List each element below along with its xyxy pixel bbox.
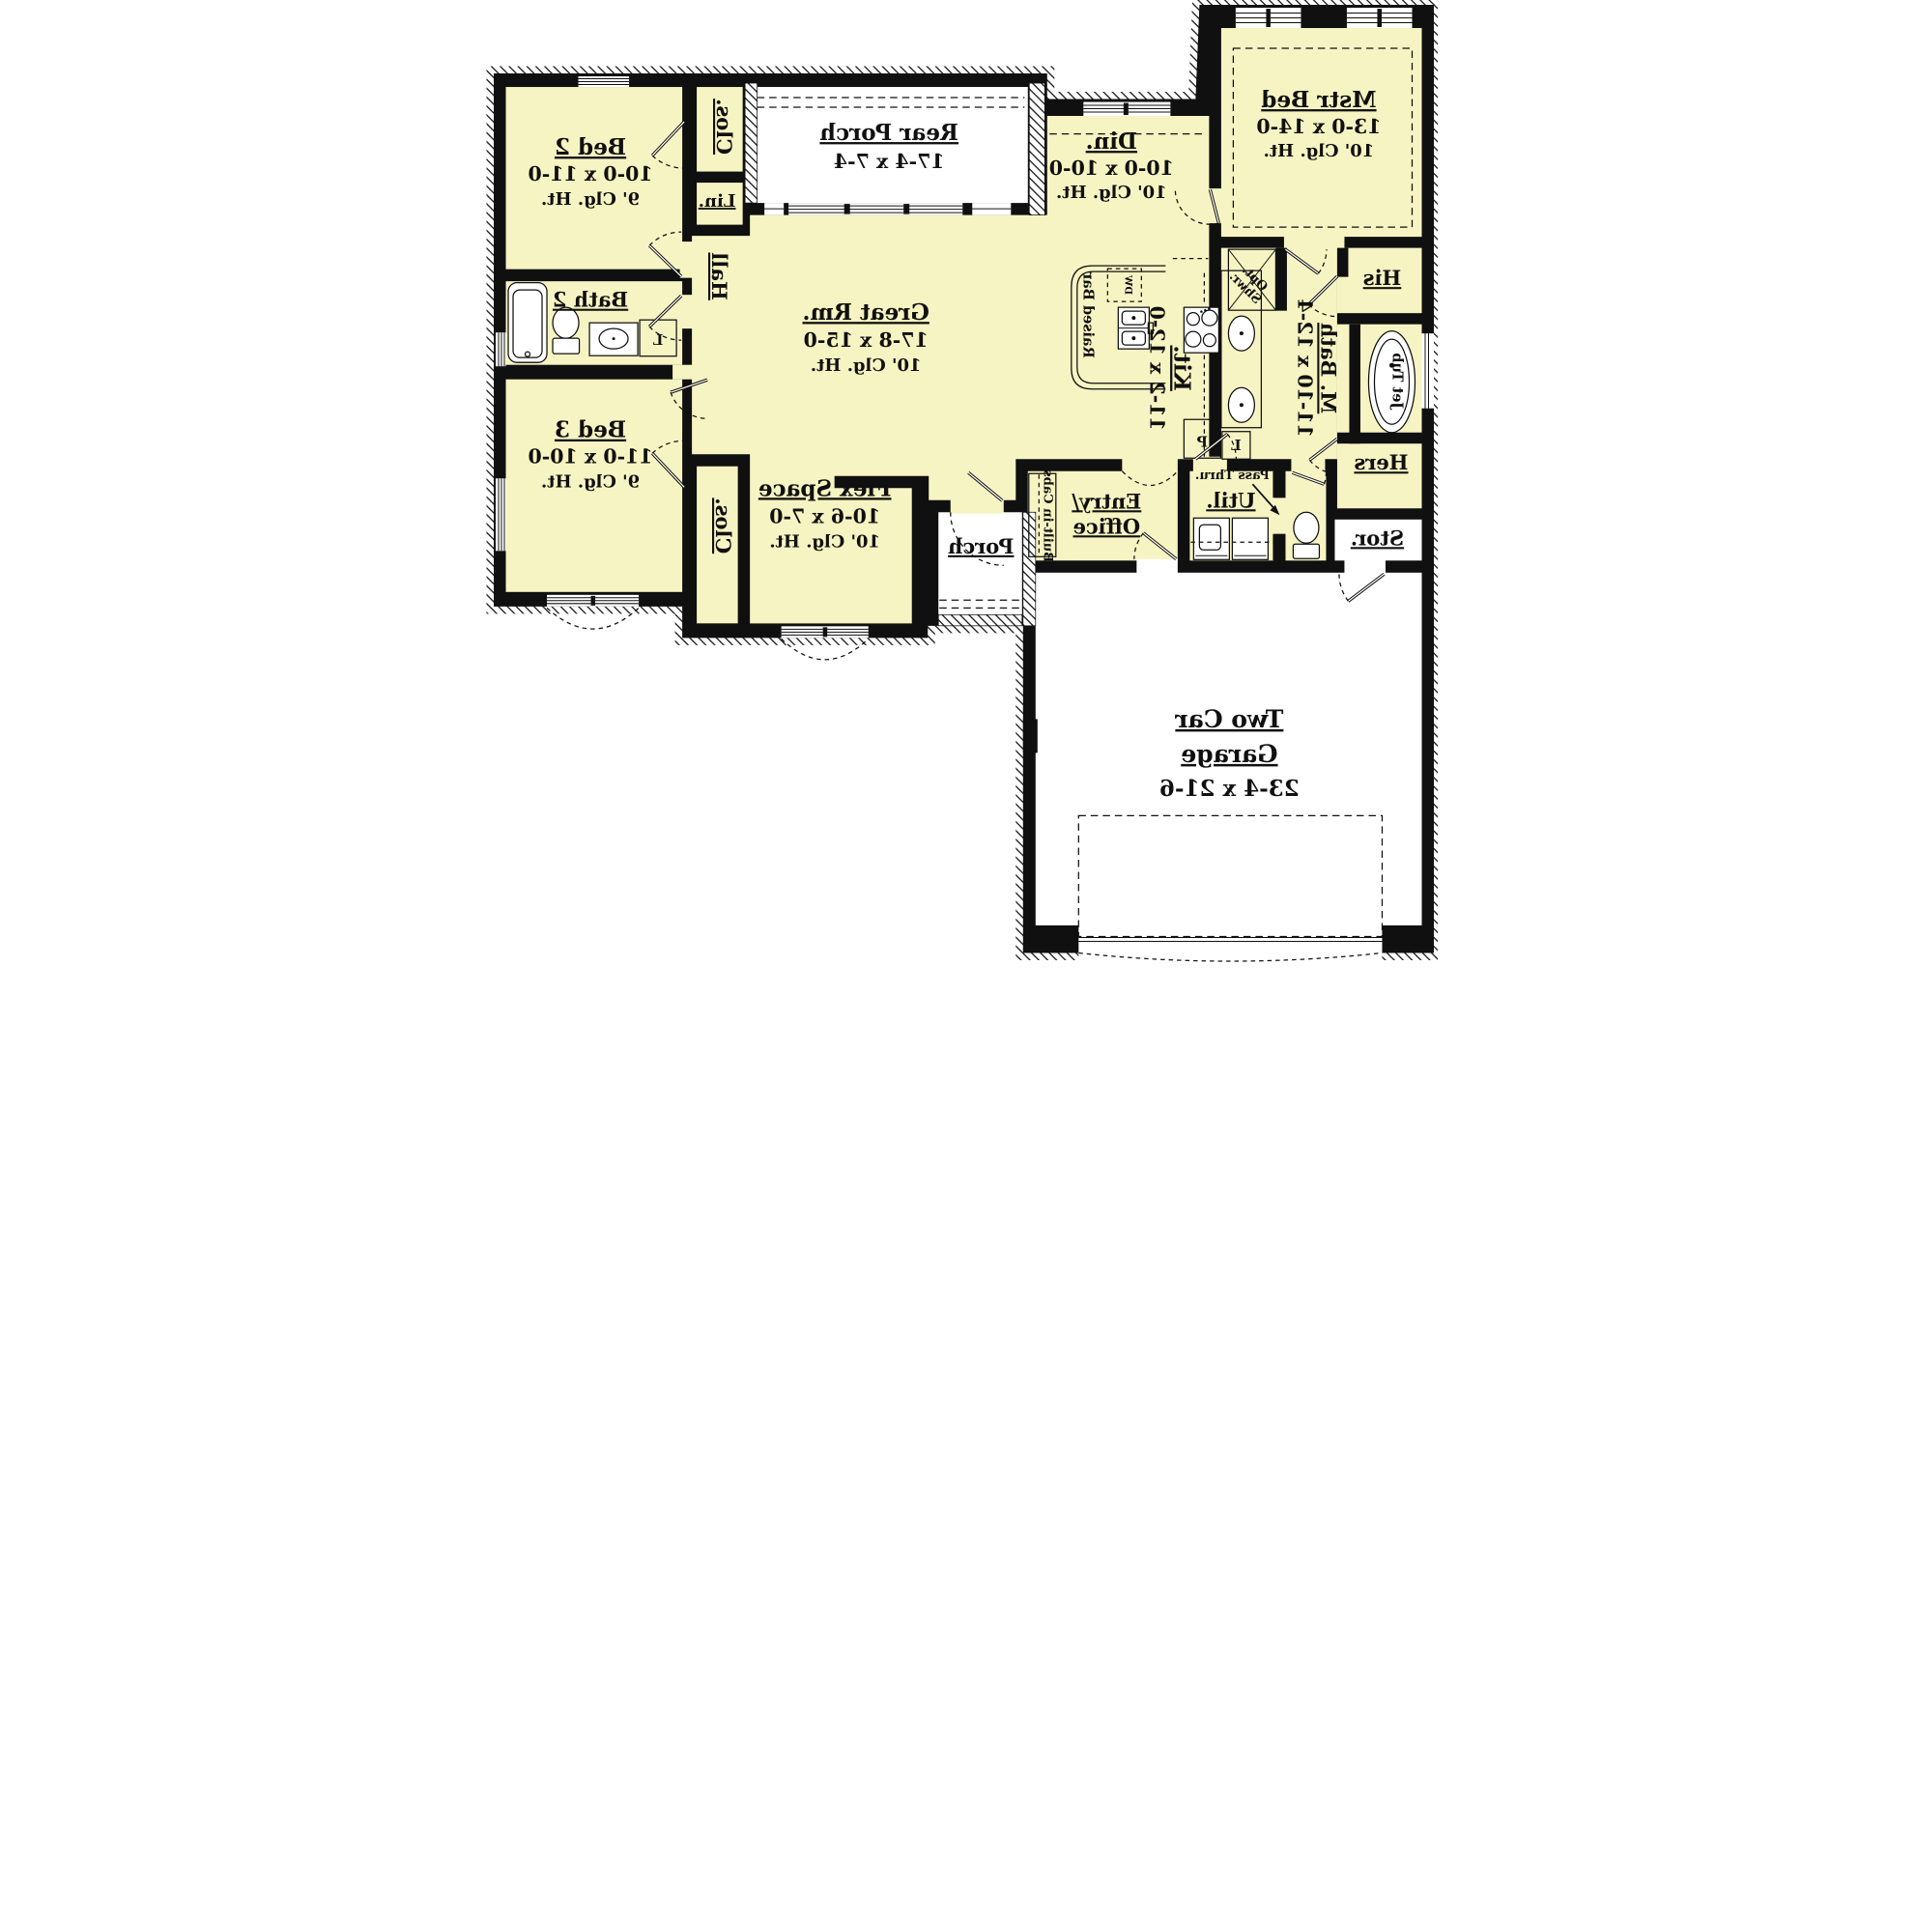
wc-wall-upper xyxy=(1273,471,1285,498)
built-in-cabs-label: Built-in Cabs xyxy=(1040,469,1054,562)
bed2-closet-label: Clos. xyxy=(712,99,736,155)
bath2-label: Bath 2 xyxy=(552,288,627,312)
kitchen-linen-label: L xyxy=(1230,437,1241,454)
flex-label: Flex Space10-6 x 7-010' Clg. Ht. xyxy=(758,475,891,552)
wc-toilet xyxy=(1293,512,1319,558)
dining-window xyxy=(1083,102,1170,117)
great-room-label: Great Rm.17-8 x 15-010' Clg. Ht. xyxy=(802,299,929,376)
hers-closet-wall xyxy=(1336,433,1421,444)
hall-label: Hall xyxy=(707,252,731,299)
rear-porch-window-right xyxy=(972,203,1011,215)
bath2-tub xyxy=(508,283,547,363)
bed3-window xyxy=(496,478,506,551)
wc-wall-lower xyxy=(1273,534,1285,561)
bath2-window xyxy=(496,332,506,366)
bath2-linen-label: L xyxy=(652,331,663,349)
master-bed-label: Mstr Bed13-0 x 14-010' Clg. Ht. xyxy=(1256,87,1381,161)
porch-floor xyxy=(938,512,1022,614)
bath2-vanity xyxy=(589,323,638,355)
bath2-toilet xyxy=(553,307,580,354)
linen-label: Lin. xyxy=(698,191,735,212)
pantry-label: P xyxy=(1196,434,1207,451)
raised-bar-label: Raised Bar xyxy=(1079,271,1096,358)
hers-closet-label: Hers xyxy=(1354,450,1408,474)
util-washer-dryer xyxy=(1190,518,1274,559)
bed2-window xyxy=(578,76,629,87)
shower-wall xyxy=(1275,248,1287,311)
jet-tub-label: Jet Tub xyxy=(1388,353,1405,411)
flex-south-window xyxy=(781,626,868,638)
his-closet-wall xyxy=(1336,313,1421,325)
floor-plan-page: Bed 210-0 x 11-09' Clg. Ht. Clos. Lin. R… xyxy=(479,0,1438,967)
tub-alcove-wall xyxy=(1349,325,1360,444)
master-window-2 xyxy=(1346,8,1412,28)
storage-label: Stor. xyxy=(1350,526,1403,550)
dishwasher-label: DW xyxy=(1122,274,1132,295)
his-closet-label: His xyxy=(1362,266,1401,290)
master-window-1 xyxy=(1235,8,1301,28)
garage-wall-pier xyxy=(1022,719,1037,753)
pass-thru-label: Pass Thru. xyxy=(1194,469,1269,483)
util-label: Util. xyxy=(1206,488,1255,512)
bed3-closet-label: Clos. xyxy=(711,497,735,554)
porch-label: Porch xyxy=(948,534,1014,558)
tub-window xyxy=(1421,333,1434,409)
floor-plan-drawing: Bed 210-0 x 11-09' Clg. Ht. Clos. Lin. R… xyxy=(479,0,1438,967)
bed3-south-window xyxy=(547,595,639,607)
rear-porch-window-left xyxy=(764,203,784,215)
rear-porch-slider xyxy=(788,203,962,215)
